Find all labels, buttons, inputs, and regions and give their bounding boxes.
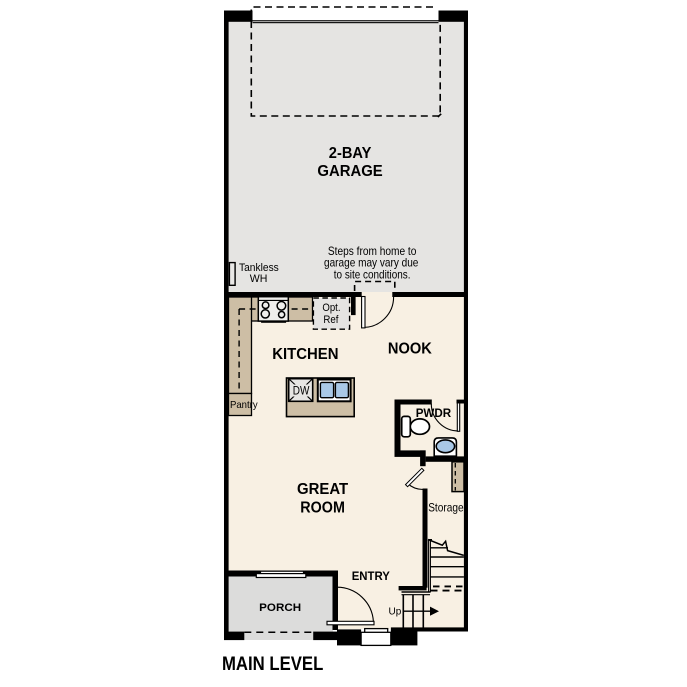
svg-text:NOOK: NOOK <box>388 341 432 358</box>
svg-text:Up: Up <box>389 606 402 617</box>
svg-text:PORCH: PORCH <box>259 602 301 614</box>
svg-text:ENTRY: ENTRY <box>352 569 390 583</box>
svg-text:Opt.: Opt. <box>322 302 340 314</box>
svg-text:PWDR: PWDR <box>416 406 452 420</box>
svg-text:Pantry: Pantry <box>230 400 258 411</box>
svg-text:Ref: Ref <box>323 314 339 326</box>
svg-text:GARAGE: GARAGE <box>317 163 383 180</box>
svg-text:ROOM: ROOM <box>300 499 345 516</box>
svg-text:MAIN LEVEL: MAIN LEVEL <box>222 653 323 675</box>
svg-text:KITCHEN: KITCHEN <box>272 346 338 363</box>
svg-text:WH: WH <box>250 273 268 285</box>
svg-text:2-BAY: 2-BAY <box>329 145 372 162</box>
svg-text:DW: DW <box>293 383 310 397</box>
svg-text:to site conditions.: to site conditions. <box>334 267 411 281</box>
svg-text:Storage: Storage <box>428 501 464 515</box>
svg-text:GREAT: GREAT <box>297 481 348 498</box>
